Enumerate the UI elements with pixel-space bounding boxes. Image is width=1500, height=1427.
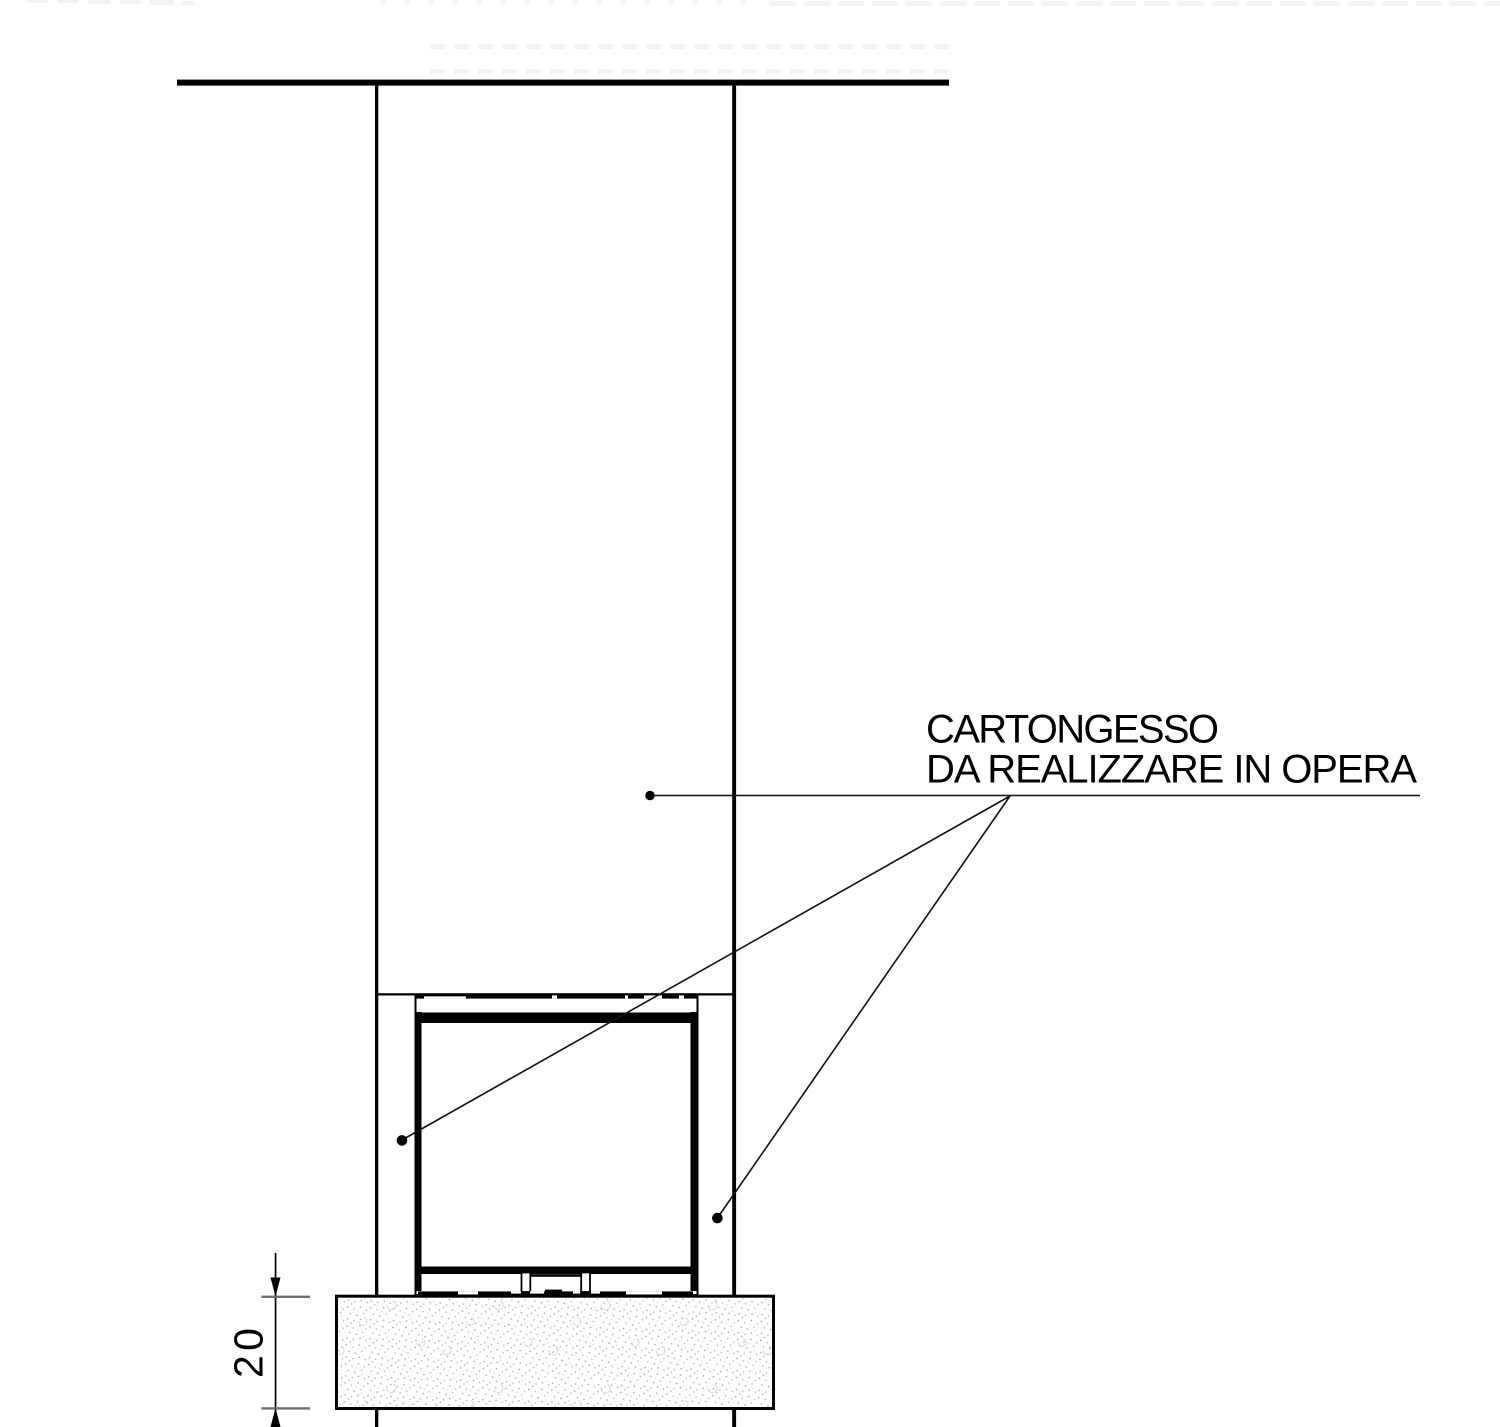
svg-text:DA REALIZZARE IN OPERA: DA REALIZZARE IN OPERA — [926, 748, 1417, 792]
svg-text:CARTONGESSO: CARTONGESSO — [926, 707, 1219, 751]
